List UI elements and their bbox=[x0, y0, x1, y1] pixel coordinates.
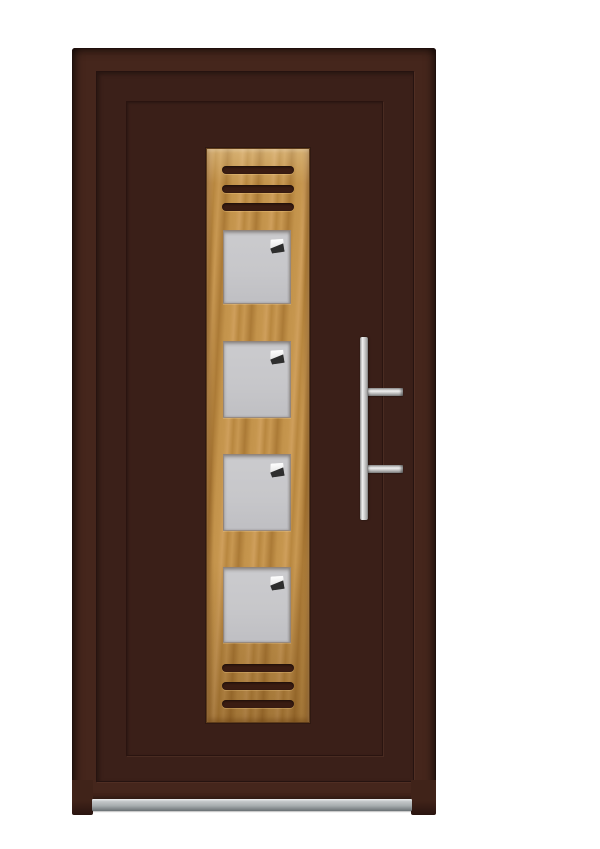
threshold-sill bbox=[92, 799, 412, 811]
glass-lite-3 bbox=[223, 454, 291, 531]
wood-inlay-panel bbox=[206, 148, 310, 723]
bottom-vent-slot-2 bbox=[222, 682, 294, 690]
product-image-canvas bbox=[0, 0, 600, 849]
glass-corner-motif-icon bbox=[269, 238, 284, 253]
bottom-vent-slot-3 bbox=[222, 700, 294, 708]
top-vent-slot-2 bbox=[222, 185, 294, 193]
glass-corner-motif-icon bbox=[269, 349, 284, 364]
frame-leg-right bbox=[411, 780, 436, 815]
glass-lite-4 bbox=[223, 567, 291, 643]
glass-corner-motif-icon bbox=[269, 575, 284, 590]
glass-corner-motif-icon bbox=[269, 462, 284, 477]
top-vent-slot-3 bbox=[222, 203, 294, 211]
frame-leg-left bbox=[72, 780, 93, 815]
top-vent-slot-1 bbox=[222, 166, 294, 174]
door-pull-handle bbox=[360, 337, 368, 520]
handle-mount-lower bbox=[364, 465, 403, 473]
door-slab bbox=[72, 48, 436, 800]
bottom-vent-slot-1 bbox=[222, 664, 294, 672]
glass-lite-1 bbox=[223, 230, 291, 304]
glass-lite-2 bbox=[223, 341, 291, 418]
handle-mount-upper bbox=[364, 388, 403, 396]
